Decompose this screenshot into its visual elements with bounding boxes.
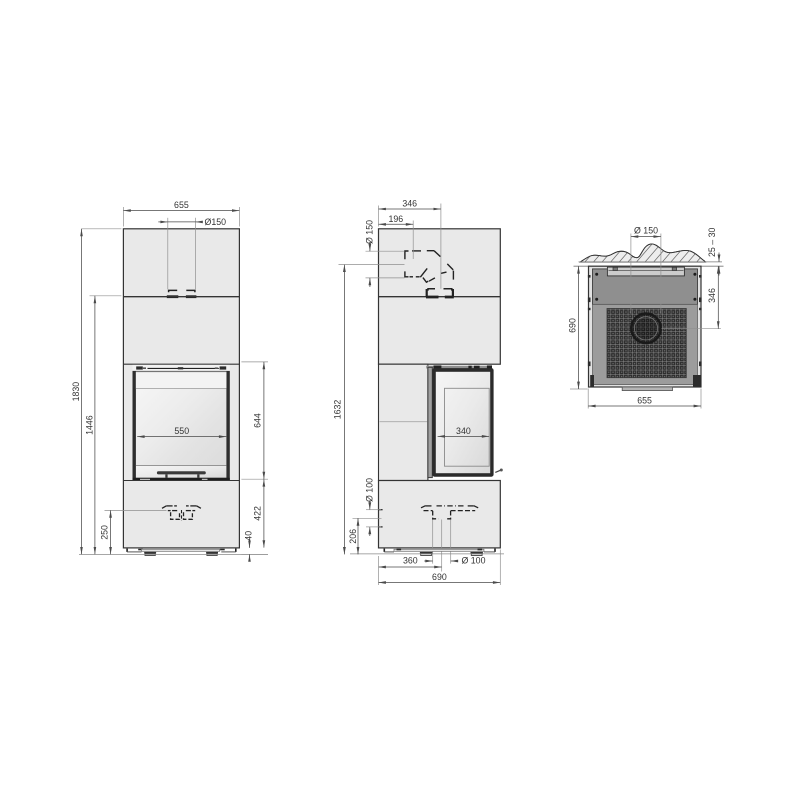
svg-text:655: 655 (174, 200, 189, 210)
svg-text:690: 690 (568, 318, 578, 333)
svg-text:340: 340 (456, 426, 471, 436)
svg-text:1632: 1632 (333, 400, 343, 420)
svg-text:196: 196 (389, 214, 404, 224)
svg-text:346: 346 (707, 288, 717, 303)
svg-text:550: 550 (174, 426, 189, 436)
svg-text:206: 206 (348, 529, 358, 544)
svg-text:346: 346 (402, 199, 417, 209)
svg-text:250: 250 (100, 525, 110, 540)
svg-text:Ø 150: Ø 150 (365, 220, 375, 244)
svg-text:690: 690 (432, 572, 447, 582)
svg-text:25 – 30: 25 – 30 (707, 228, 717, 257)
svg-text:Ø150: Ø150 (205, 217, 227, 227)
svg-text:360: 360 (403, 556, 418, 566)
svg-text:1446: 1446 (85, 415, 95, 435)
svg-text:40: 40 (243, 531, 253, 541)
svg-text:1830: 1830 (71, 382, 81, 402)
svg-text:Ø 100: Ø 100 (365, 478, 375, 502)
svg-text:644: 644 (253, 413, 263, 428)
svg-text:422: 422 (253, 506, 263, 521)
svg-text:Ø 150: Ø 150 (634, 225, 658, 235)
svg-text:655: 655 (637, 396, 652, 406)
svg-text:Ø 100: Ø 100 (462, 556, 486, 566)
